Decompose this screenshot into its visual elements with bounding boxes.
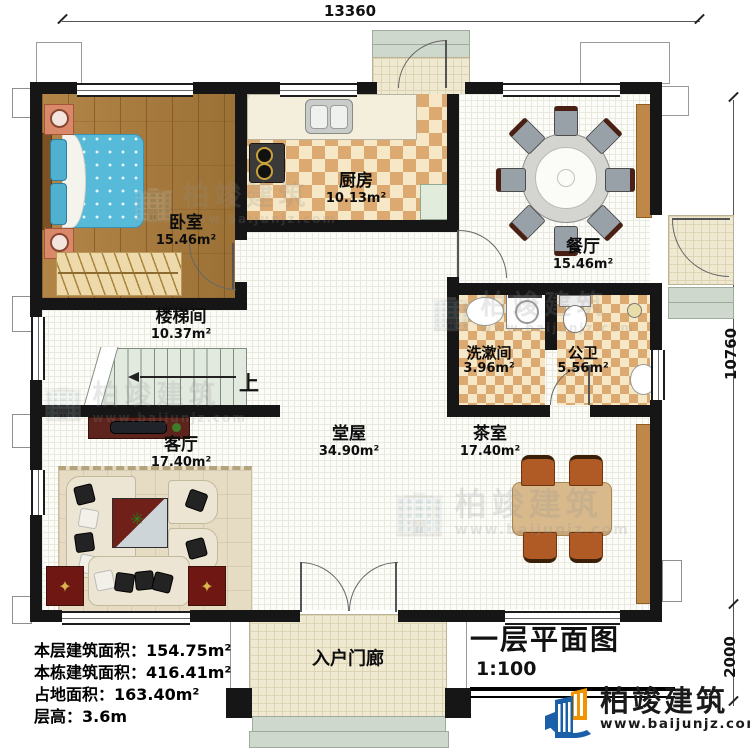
wall — [447, 283, 662, 295]
sofa-pillow — [184, 488, 208, 512]
side-door-leaf — [672, 218, 730, 220]
stairs-arrow-line — [140, 376, 236, 378]
dining-window — [503, 83, 620, 97]
wall — [447, 94, 459, 230]
wardrobe-rail — [58, 272, 178, 274]
stairs-up-label: 上 — [239, 367, 259, 396]
coffee-table-plant: ✳ — [130, 512, 144, 529]
tea-table — [512, 482, 612, 536]
star-icon: ✦ — [58, 577, 71, 596]
info-line: 本栋建筑面积：416.41m² — [34, 662, 231, 684]
wall — [545, 295, 557, 350]
room-label-entrance-porch: 入户门廊 — [312, 650, 384, 671]
room-label-tearoom: 茶室17.40m² — [460, 425, 520, 459]
brand-text: 柏竣建筑 www.baijunjz.com — [600, 686, 750, 732]
dimension-height-label: 10760 — [722, 316, 740, 392]
sofa-pillow — [77, 507, 99, 529]
entrance-door-leaf — [300, 562, 302, 612]
tea-chair — [521, 455, 555, 486]
window-sill — [12, 596, 32, 624]
sofa-bottom — [88, 556, 190, 606]
tea-chair — [523, 532, 557, 563]
tv-plant — [172, 423, 181, 432]
living-window-bottom — [62, 611, 190, 625]
dining-table-center — [557, 169, 575, 187]
sofa-pillow — [93, 569, 116, 592]
washing-machine-drum — [515, 300, 539, 324]
floor-plan: 13360 10760 2000 — [0, 0, 750, 756]
nightstand-lamp — [50, 109, 69, 128]
star-icon: ✦ — [200, 577, 213, 596]
sofa-pillow — [151, 571, 174, 594]
right-porch-step — [668, 302, 734, 319]
brand-name: 柏竣建筑 — [600, 686, 750, 716]
room-label-dining: 餐厅15.46m² — [553, 238, 613, 272]
bed-pillow — [50, 183, 67, 225]
build-info: 本层建筑面积：154.75m² 本栋建筑面积：416.41m² 占地面积：163… — [34, 640, 231, 728]
dining-chair — [554, 106, 578, 136]
bathroom-window — [651, 350, 665, 400]
stove-burner — [256, 163, 273, 180]
info-line: 层高：3.6m — [34, 706, 231, 728]
stairwell-window — [31, 317, 45, 380]
end-table: ✦ — [46, 566, 84, 606]
plan-scale: 1:100 — [476, 658, 536, 680]
info-line: 占地面积：163.40m² — [34, 684, 231, 706]
sink-basin — [330, 105, 348, 129]
wall — [235, 94, 247, 240]
bedroom-window — [77, 83, 193, 97]
stairs-arrow-head — [128, 372, 139, 382]
sofa-pillow — [74, 532, 95, 553]
wall — [357, 82, 377, 94]
dining-chair — [496, 168, 526, 192]
wall — [30, 380, 42, 470]
dimension-width-label: 13360 — [310, 2, 390, 20]
sofa-pillow — [185, 537, 208, 560]
plan-title: 一层平面图 — [470, 618, 620, 658]
wardrobe — [56, 252, 182, 296]
room-label-living: 客厅17.40m² — [151, 436, 211, 470]
bedroom-door-leaf — [232, 243, 234, 289]
wall — [193, 82, 280, 94]
dining-door-leaf — [457, 230, 459, 277]
armchair-right — [168, 480, 218, 524]
washroom-sink — [466, 297, 504, 326]
entrance-door-leaf — [395, 562, 397, 612]
entrance-step — [249, 731, 449, 748]
brand-website: www.baijunjz.com — [600, 716, 750, 732]
tv — [110, 421, 167, 434]
window-sill — [12, 296, 32, 332]
washing-machine-panel — [508, 295, 542, 298]
window-sill — [12, 414, 32, 448]
wall — [30, 82, 42, 317]
kitchen-window — [280, 83, 357, 97]
wall — [30, 405, 280, 417]
room-label-hall: 堂屋34.90m² — [319, 425, 379, 459]
bed-pillow — [50, 139, 67, 181]
stove-burner — [256, 147, 273, 164]
window-sill — [12, 88, 32, 118]
wall — [237, 220, 459, 232]
shower-head — [627, 303, 642, 318]
wall — [447, 295, 459, 417]
dim-tick — [694, 14, 705, 25]
nightstand-lamp — [50, 233, 69, 252]
wall — [590, 405, 662, 417]
toilet-bowl — [563, 305, 587, 333]
porch-column — [445, 688, 471, 718]
dimension-porch-label: 2000 — [721, 627, 739, 687]
wall — [447, 405, 550, 417]
tea-chair — [569, 532, 603, 563]
end-table: ✦ — [188, 566, 226, 606]
roof-outline-left — [36, 42, 82, 84]
room-label-bathroom: 公卫5.56m² — [557, 345, 608, 377]
info-line: 本层建筑面积：154.75m² — [34, 640, 231, 662]
wall — [190, 610, 300, 622]
sink-basin — [310, 105, 328, 129]
room-label-washroom: 洗漱间3.96m² — [463, 345, 514, 377]
wall — [42, 298, 247, 310]
sofa-pillow — [73, 483, 96, 506]
dimension-line-top — [62, 21, 700, 22]
dining-chair — [605, 168, 635, 192]
brand-logo-icon — [543, 686, 595, 744]
tea-chair — [569, 455, 603, 486]
wall — [30, 515, 42, 622]
living-window-left — [31, 470, 45, 515]
wall — [465, 82, 503, 94]
wall — [650, 82, 662, 215]
dim-tick — [57, 14, 68, 25]
stairs — [100, 348, 247, 407]
wall — [650, 400, 662, 622]
back-door-leaf — [445, 40, 447, 88]
room-label-stairwell: 楼梯间10.37m² — [151, 308, 211, 342]
sofa-pillow — [114, 572, 135, 593]
room-label-bedroom: 卧室15.46m² — [156, 214, 216, 248]
room-label-kitchen: 厨房10.13m² — [326, 172, 386, 206]
window-sill — [662, 560, 682, 602]
roof-outline-right — [580, 42, 670, 84]
brand-logo: 柏竣建筑 www.baijunjz.com — [543, 686, 750, 744]
